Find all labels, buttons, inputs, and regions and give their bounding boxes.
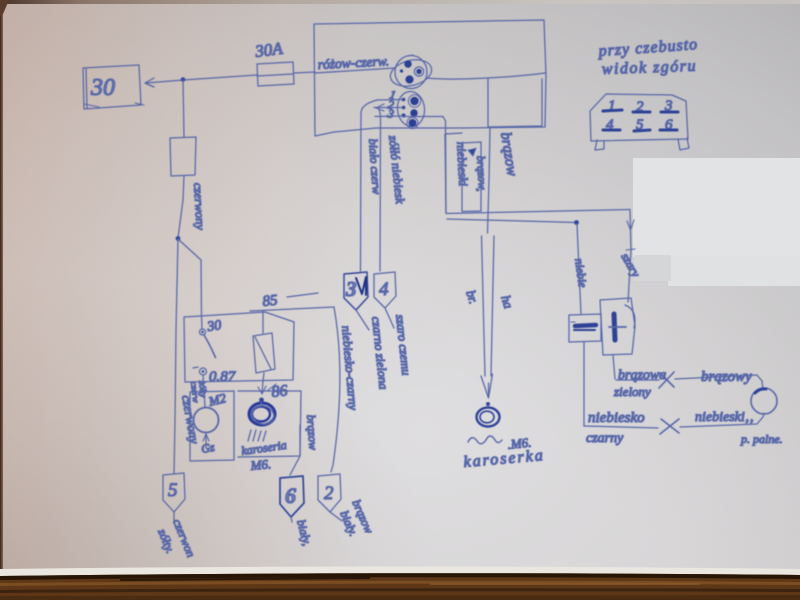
svg-text:30: 30: [90, 75, 115, 101]
svg-text:4: 4: [379, 279, 389, 300]
svg-text:2: 2: [324, 483, 334, 504]
svg-text:3: 3: [345, 277, 357, 301]
svg-text:85: 85: [262, 292, 279, 310]
svg-text:6: 6: [285, 483, 296, 508]
svg-text:zielony: zielony: [613, 384, 651, 399]
svg-text:M6.: M6.: [249, 456, 272, 473]
svg-text:30A: 30A: [253, 39, 284, 61]
svg-text:czarny: czarny: [586, 431, 624, 446]
svg-text:brązow: brązow: [304, 414, 320, 450]
svg-text:5: 5: [168, 480, 178, 501]
svg-text:p. palne.: p. palne.: [740, 432, 783, 446]
svg-text:niebiesko: niebiesko: [588, 410, 645, 426]
svg-text:brązowa: brązowa: [618, 368, 666, 383]
svg-text:0.87: 0.87: [209, 369, 237, 385]
svg-text:brązowy: brązowy: [701, 369, 752, 385]
svg-text:86: 86: [271, 382, 289, 401]
svg-text:czerwony: czerwony: [191, 182, 207, 230]
svg-text:Gz: Gz: [200, 440, 216, 456]
svg-text:widok zgóru: widok zgóru: [602, 58, 698, 78]
svg-text:brązow̧: brązow̧: [474, 156, 488, 191]
svg-text:niebieski: niebieski: [454, 141, 470, 187]
svg-text:niebieski‚‚: niebieski‚‚: [695, 410, 754, 425]
svg-text:30: 30: [205, 318, 222, 335]
